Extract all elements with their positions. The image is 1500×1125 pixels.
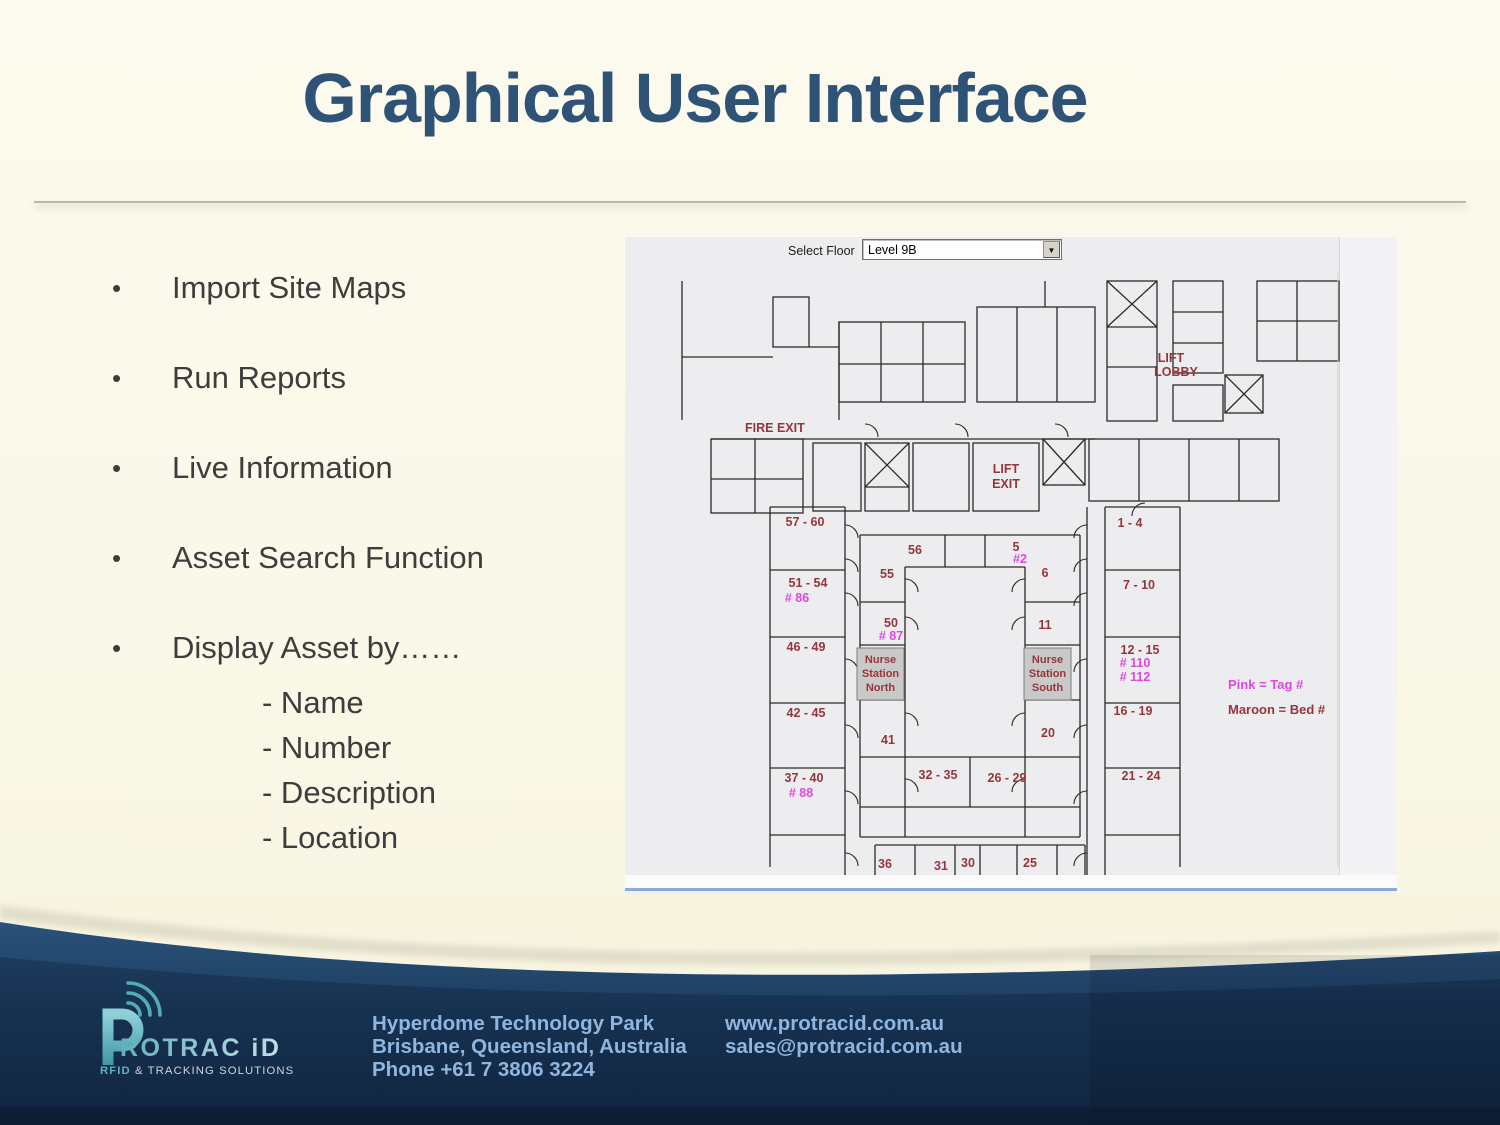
select-floor-label: Select Floor: [788, 244, 855, 258]
footer-panel-seam: [1090, 955, 1500, 1125]
bullet-item: •Import Site Maps: [112, 270, 592, 316]
room-label: 25: [1023, 856, 1037, 870]
room-label: FIRE EXIT: [745, 421, 805, 435]
room-label: 41: [881, 733, 895, 747]
footer-web: www.protracid.com.ausales@protracid.com.…: [725, 1012, 963, 1058]
room-label: 37 - 40: [785, 771, 824, 785]
nurse-station-label: Nurse: [865, 654, 896, 666]
door-arc: [905, 779, 918, 792]
sub-bullet-item: - Description: [262, 770, 436, 815]
room-label: 20: [1041, 726, 1055, 740]
room-label: 55: [880, 567, 894, 581]
room-label: 50: [884, 616, 898, 630]
room-label: # 87: [879, 629, 903, 643]
floorplan-svg: NurseStationNorthNurseStationSouthFIRE E…: [625, 267, 1397, 875]
footer-address: Hyperdome Technology ParkBrisbane, Queen…: [372, 1012, 687, 1081]
sub-bullet-item: - Location: [262, 815, 436, 860]
door-arc: [905, 713, 918, 726]
room-label: 36: [878, 857, 892, 871]
bullet-dot: •: [112, 630, 172, 664]
door-arc: [1132, 503, 1145, 516]
room-label: 26 - 29: [988, 771, 1027, 785]
bullet-item: •Live Information: [112, 450, 592, 496]
bullet-dot: •: [112, 360, 172, 394]
door-arc: [1012, 617, 1025, 630]
room-label: 57 - 60: [786, 515, 825, 529]
door-arc: [955, 424, 968, 437]
footer: ROTRAC iD RFID & TRACKING SOLUTIONS Hype…: [0, 895, 1500, 1125]
footer-web-line: www.protracid.com.au: [725, 1012, 963, 1035]
nurse-station-label: North: [866, 682, 896, 694]
room-label: EXIT: [992, 477, 1020, 491]
room-label: 51 - 54: [789, 576, 828, 590]
door-arc: [1055, 424, 1068, 437]
chevron-down-icon: ▼: [1044, 242, 1059, 259]
room-label: 30: [961, 856, 975, 870]
room-label: 7 - 10: [1123, 578, 1155, 592]
door-arc: [845, 725, 858, 738]
room-label: # 88: [789, 786, 813, 800]
door-arc: [1012, 579, 1025, 592]
door-arc: [845, 659, 858, 672]
footer-address-line: Phone +61 7 3806 3224: [372, 1058, 687, 1081]
door-arc: [865, 424, 878, 437]
bullet-list: •Import Site Maps•Run Reports•Live Infor…: [112, 270, 592, 720]
footer-art: ROTRAC iD RFID & TRACKING SOLUTIONS: [0, 895, 1500, 1125]
slide: Graphical User Interface •Import Site Ma…: [0, 0, 1500, 1125]
room-label: 42 - 45: [787, 706, 826, 720]
door-arc: [905, 617, 918, 630]
door-arc: [1012, 713, 1025, 726]
floor-dropdown[interactable]: Level 9B ▼: [862, 239, 1062, 260]
bullet-dot: •: [112, 270, 172, 304]
room-label: 32 - 35: [919, 768, 958, 782]
logo-brand-text: ROTRAC iD: [120, 1034, 281, 1062]
room-label: LOBBY: [1154, 365, 1198, 379]
footer-web-line: sales@protracid.com.au: [725, 1035, 963, 1058]
room-label: 16 - 19: [1114, 704, 1153, 718]
nurse-station-label: Station: [862, 668, 900, 680]
dropdown-arrow-button[interactable]: ▼: [1043, 241, 1060, 258]
room-label: 11: [1038, 618, 1051, 632]
sub-bullet-item: - Name: [262, 680, 436, 725]
app-screenshot: Select Floor Level 9B ▼: [625, 237, 1397, 895]
bullet-dot: •: [112, 450, 172, 484]
window-bottom-strip: [625, 875, 1397, 888]
nurse-station-label: Station: [1029, 668, 1067, 680]
nurse-station-label: South: [1032, 682, 1063, 694]
door-arc: [845, 525, 858, 538]
nurse-station-label: Nurse: [1032, 654, 1063, 666]
door-arc: [845, 593, 858, 606]
sub-bullet-item: - Number: [262, 725, 436, 770]
room-label: #2: [1013, 552, 1027, 566]
logo-tagline: RFID & TRACKING SOLUTIONS: [100, 1065, 294, 1077]
footer-address-line: Brisbane, Queensland, Australia: [372, 1035, 687, 1058]
room-label: Maroon = Bed #: [1228, 702, 1326, 717]
bullet-item: •Asset Search Function: [112, 540, 592, 586]
room-label: 21 - 24: [1122, 769, 1161, 783]
room-label: 46 - 49: [787, 640, 826, 654]
room-label: Pink = Tag #: [1228, 677, 1304, 692]
footer-bottom-strip: [0, 1107, 1500, 1125]
floor-dropdown-value: Level 9B: [868, 243, 917, 257]
door-arc: [905, 579, 918, 592]
room-label: # 86: [785, 591, 809, 605]
title-divider: [34, 201, 1466, 203]
room-label: LIFT: [993, 462, 1020, 476]
bullet-text: Run Reports: [172, 360, 346, 396]
bullet-dot: •: [112, 540, 172, 574]
page-title: Graphical User Interface: [0, 58, 1390, 138]
room-label: 6: [1042, 566, 1049, 580]
room-label: # 112: [1120, 670, 1151, 684]
room-label: 31: [934, 859, 948, 873]
bullet-text: Display Asset by……: [172, 630, 461, 666]
footer-address-line: Hyperdome Technology Park: [372, 1012, 687, 1035]
bullet-text: Live Information: [172, 450, 393, 486]
room-label: 56: [908, 543, 922, 557]
floorplan-walls: [682, 281, 1339, 875]
room-label: 1 - 4: [1117, 516, 1142, 530]
sub-bullet-list: - Name- Number- Description- Location: [262, 680, 436, 860]
door-arc: [845, 853, 858, 866]
door-arc: [845, 791, 858, 804]
bullet-item: •Run Reports: [112, 360, 592, 406]
door-arc: [845, 559, 858, 572]
bullet-text: Import Site Maps: [172, 270, 406, 306]
bullet-item: •Display Asset by……: [112, 630, 592, 676]
room-label: # 110: [1120, 656, 1151, 670]
bullet-text: Asset Search Function: [172, 540, 484, 576]
room-label: 12 - 15: [1121, 643, 1160, 657]
room-label: LIFT: [1158, 351, 1185, 365]
